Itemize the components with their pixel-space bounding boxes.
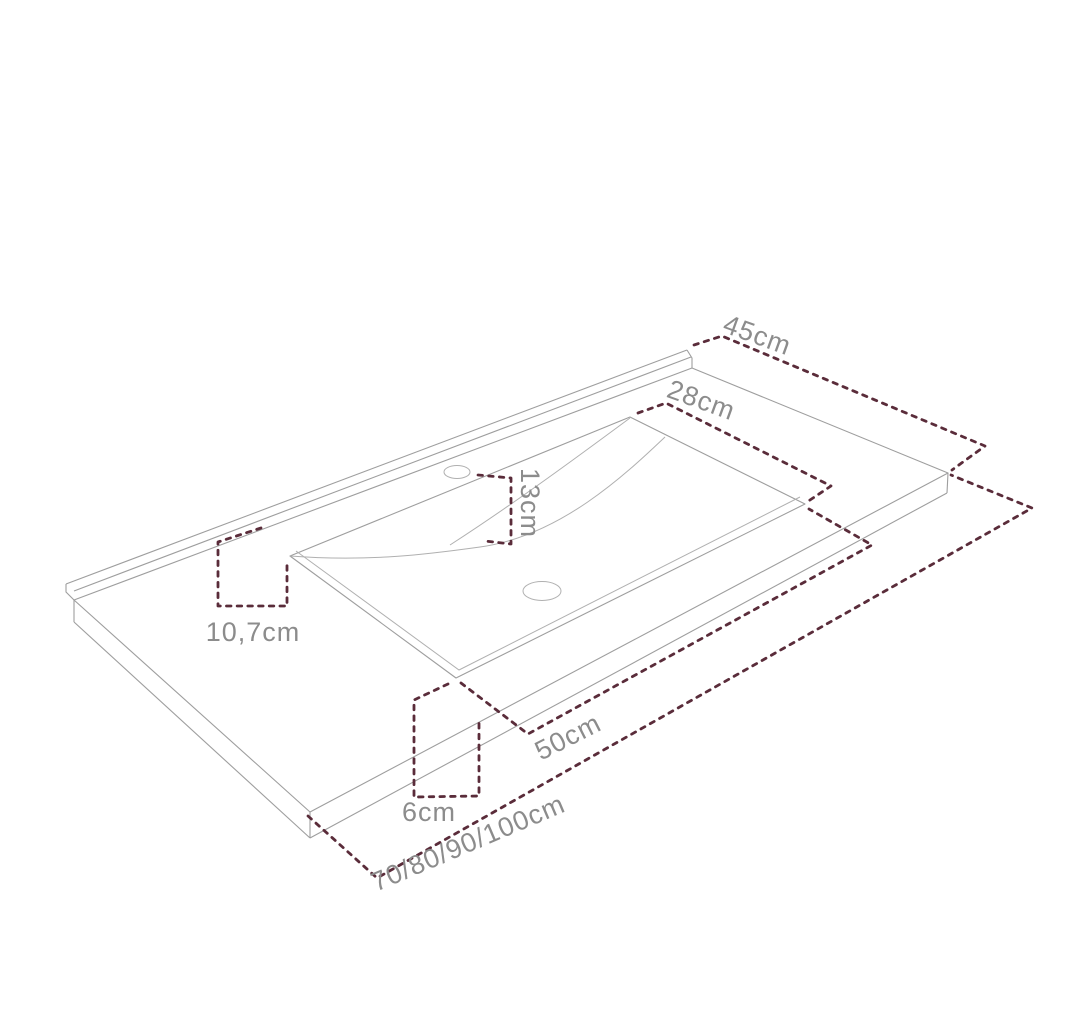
dimension-faucet-offset-line xyxy=(478,475,511,544)
countertop-right-corner-edge xyxy=(947,473,948,493)
backsplash-top-back-edge xyxy=(66,350,687,584)
countertop-front-right-bottom-edge xyxy=(310,493,947,838)
dimension-total-width-label: 70/80/90/100cm xyxy=(367,789,570,898)
dimension-height: 6cm xyxy=(402,684,479,827)
dimension-faucet-offset: 13cm xyxy=(478,468,545,544)
sink-basin xyxy=(290,417,805,678)
dimension-back-offset-label: 10,7cm xyxy=(206,617,301,647)
dimension-height-label: 6cm xyxy=(402,797,456,827)
dimension-faucet-offset-label: 13cm xyxy=(515,468,545,538)
dimension-basin-width-label: 50cm xyxy=(530,708,606,767)
dimension-basin-width-line xyxy=(461,509,872,734)
dimension-depth: 45cm xyxy=(694,309,985,470)
dimension-back-offset: 10,7cm xyxy=(206,528,301,647)
washbasin-dimension-diagram: 45cm 28cm 13cm 10,7cm 50cm 6cm xyxy=(0,0,1075,1017)
countertop xyxy=(74,368,948,838)
backsplash xyxy=(66,350,692,600)
dimension-basin-depth-label: 28cm xyxy=(663,374,739,426)
dimension-basin-depth-line xyxy=(638,403,831,502)
dimension-basin-depth: 28cm xyxy=(638,374,831,502)
countertop-front-left-bottom-edge xyxy=(74,622,310,838)
dimension-depth-line xyxy=(694,336,985,470)
dimension-height-line xyxy=(414,684,479,797)
diagram-page: 45cm 28cm 13cm 10,7cm 50cm 6cm xyxy=(0,0,1075,1017)
drain-hole xyxy=(523,582,561,601)
dimension-total-width: 70/80/90/100cm xyxy=(308,475,1032,897)
dimension-depth-label: 45cm xyxy=(719,309,795,361)
faucet-hole xyxy=(444,466,470,479)
backsplash-left-end-cap xyxy=(66,584,74,600)
backsplash-top-front-edge xyxy=(74,357,691,591)
countertop-top-face xyxy=(74,368,948,812)
basin-outer-rim xyxy=(290,417,805,678)
dimension-back-offset-line xyxy=(218,528,287,606)
backsplash-right-end-cap xyxy=(687,350,692,368)
